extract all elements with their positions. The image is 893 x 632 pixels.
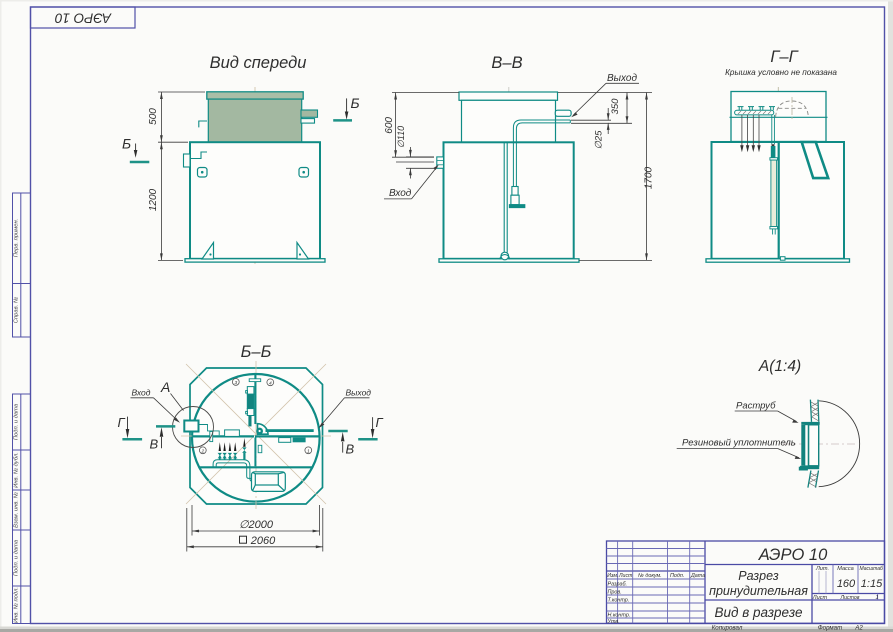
svg-text:1: 1 <box>875 595 878 601</box>
svg-text:Г–Г: Г–Г <box>770 48 798 66</box>
svg-text:350: 350 <box>610 98 621 115</box>
svg-text:Справ. №: Справ. № <box>13 297 19 323</box>
svg-text:500: 500 <box>148 108 159 125</box>
svg-text:принудительная: принудительная <box>709 584 808 598</box>
svg-text:Копировал: Копировал <box>712 625 743 632</box>
svg-text:Подп.: Подп. <box>670 573 684 579</box>
svg-text:В: В <box>150 437 159 452</box>
svg-text:Б: Б <box>122 136 131 152</box>
svg-text:Лит.: Лит. <box>815 566 829 572</box>
svg-text:Листов: Листов <box>840 595 860 601</box>
svg-text:Подп. и дата: Подп. и дата <box>13 539 19 576</box>
svg-text:Вид в разрезе: Вид в разрезе <box>714 605 802 620</box>
svg-text:Утв.: Утв. <box>607 619 620 625</box>
svg-text:Инв. № подл.: Инв. № подл. <box>13 587 19 623</box>
svg-text:Подп. и дата: Подп. и дата <box>13 403 19 440</box>
svg-text:2060: 2060 <box>250 535 276 547</box>
svg-text:В: В <box>346 442 355 457</box>
svg-text:∅110: ∅110 <box>396 126 406 148</box>
svg-text:Б: Б <box>351 95 360 111</box>
svg-text:№ докум.: № докум. <box>638 573 662 579</box>
svg-text:А: А <box>160 379 170 395</box>
svg-text:Разраб.: Разраб. <box>608 581 628 587</box>
svg-text:1200: 1200 <box>148 188 159 211</box>
svg-text:2: 2 <box>200 448 204 454</box>
svg-text:Вид спереди: Вид спереди <box>210 54 307 72</box>
svg-text:Лист: Лист <box>812 595 828 601</box>
svg-text:Г: Г <box>376 415 384 430</box>
svg-text:Изм.: Изм. <box>607 573 618 579</box>
svg-text:3: 3 <box>234 380 237 386</box>
svg-text:∅2000: ∅2000 <box>239 519 274 531</box>
svg-text:Взам. инв. №: Взам. инв. № <box>13 492 19 528</box>
svg-text:Перв. примен.: Перв. примен. <box>13 219 19 258</box>
svg-text:Лист: Лист <box>618 573 633 579</box>
svg-text:Резиновый уплотнитель: Резиновый уплотнитель <box>682 438 796 449</box>
svg-text:1: 1 <box>307 448 310 454</box>
svg-text:В–В: В–В <box>491 54 522 72</box>
svg-text:Крышка условно не показана: Крышка условно не показана <box>725 68 837 77</box>
svg-text:Н.контр.: Н.контр. <box>608 612 631 618</box>
svg-text:600: 600 <box>384 117 395 134</box>
svg-text:Инв. № дубл.: Инв. № дубл. <box>13 452 19 488</box>
svg-text:Выход: Выход <box>346 388 372 398</box>
svg-text:∅25: ∅25 <box>594 130 605 150</box>
svg-text:Б–Б: Б–Б <box>241 343 272 361</box>
svg-text:1700: 1700 <box>644 166 655 189</box>
svg-text:Выход: Выход <box>607 73 637 84</box>
svg-text:1:15: 1:15 <box>861 578 883 590</box>
svg-text:Вход: Вход <box>389 188 412 199</box>
svg-text:Вход: Вход <box>132 388 151 398</box>
svg-text:4: 4 <box>269 380 272 386</box>
svg-text:Разрез: Разрез <box>738 569 779 583</box>
svg-text:Пров.: Пров. <box>608 589 622 595</box>
svg-text:А2: А2 <box>854 625 863 632</box>
svg-text:Г: Г <box>118 415 126 430</box>
svg-text:Формат: Формат <box>818 625 843 632</box>
svg-text:Масса: Масса <box>837 566 854 572</box>
svg-text:А(1:4): А(1:4) <box>758 358 801 375</box>
svg-text:АЭРО 10: АЭРО 10 <box>758 546 828 564</box>
svg-text:Масштаб: Масштаб <box>860 566 884 572</box>
svg-text:Т.контр.: Т.контр. <box>608 597 630 603</box>
svg-text:АЭРО 10: АЭРО 10 <box>54 11 112 26</box>
svg-text:Дата: Дата <box>690 573 705 579</box>
svg-text:160: 160 <box>837 578 856 590</box>
svg-text:Раструб: Раструб <box>736 400 776 411</box>
